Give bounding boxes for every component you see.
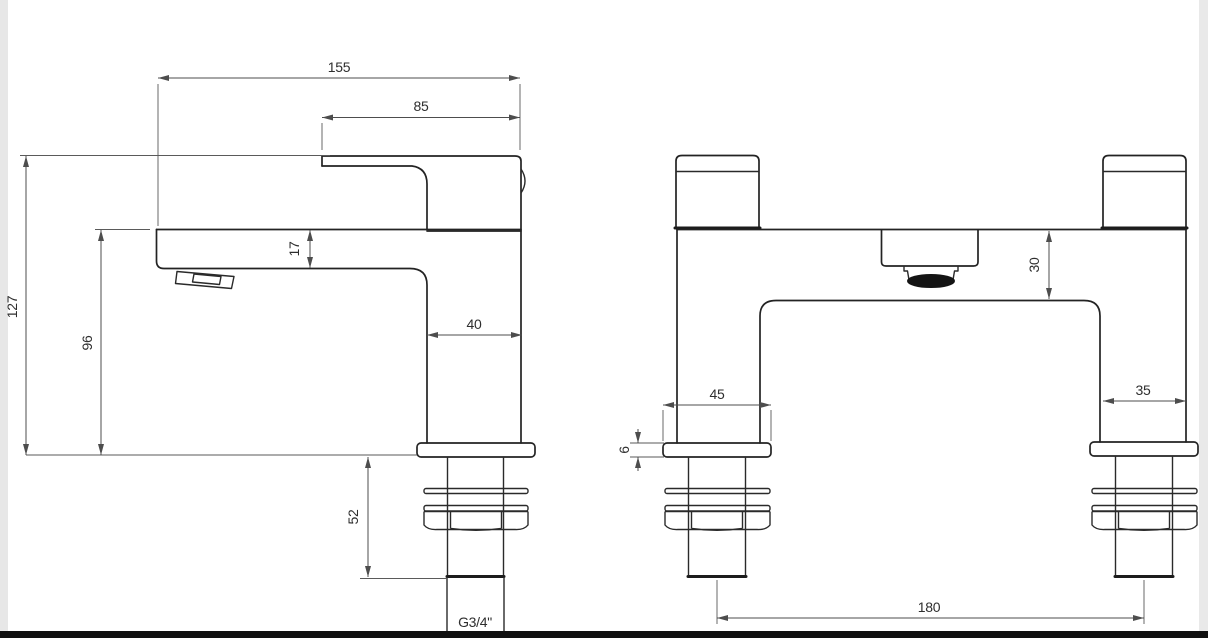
- front-left-shank: [689, 457, 746, 576]
- front-left-washer-top: [665, 489, 770, 494]
- front-right-washer-top: [1092, 489, 1197, 494]
- front-view: 45 6 30 35 180: [616, 156, 1198, 625]
- dim-155: 155: [328, 59, 351, 75]
- dim-6: 6: [616, 446, 632, 454]
- side-view: 155 85 127 96 17 40 52 G3/4": [4, 59, 535, 633]
- dim-thread: G3/4": [458, 614, 492, 630]
- front-left-knob: [676, 156, 759, 229]
- dim-40: 40: [467, 316, 482, 332]
- front-right-knob: [1103, 156, 1186, 229]
- side-aerator-inner: [193, 274, 222, 285]
- dim-45: 45: [710, 386, 725, 402]
- tap-dimension-drawing: 155 85 127 96 17 40 52 G3/4": [0, 0, 1208, 638]
- side-washer-top: [424, 489, 528, 494]
- front-bridge-arch: [760, 301, 1100, 444]
- side-shank: [448, 457, 504, 576]
- dim-30: 30: [1026, 257, 1042, 272]
- side-handle-outline: [322, 156, 521, 443]
- front-right-flange: [1090, 442, 1198, 456]
- dim-35: 35: [1136, 382, 1151, 398]
- side-base-flange: [417, 443, 535, 457]
- dim-17: 17: [286, 241, 302, 256]
- dim-180: 180: [918, 599, 941, 615]
- front-right-shank: [1116, 456, 1173, 576]
- dim-85: 85: [414, 98, 429, 114]
- front-left-washer-bottom: [665, 506, 770, 512]
- front-left-backnut: [665, 512, 770, 531]
- front-right-backnut: [1092, 512, 1197, 531]
- side-handle-underside: [322, 166, 427, 229]
- front-left-flange: [663, 443, 771, 457]
- side-spout-outline: [157, 230, 428, 444]
- technical-drawing-canvas: 155 85 127 96 17 40 52 G3/4": [0, 0, 1208, 638]
- front-aerator-face: [908, 275, 955, 288]
- bottom-black-bar: [0, 631, 1208, 638]
- front-spout-recess: [882, 230, 979, 266]
- side-dimensions: 155 85 127 96 17 40 52 G3/4": [4, 59, 522, 630]
- side-washer-bottom: [424, 506, 528, 512]
- side-backnut: [424, 512, 528, 531]
- dim-52: 52: [345, 509, 361, 524]
- side-aerator-outer: [176, 272, 235, 289]
- dim-96: 96: [79, 335, 95, 350]
- front-right-washer-bottom: [1092, 506, 1197, 512]
- dim-127: 127: [4, 295, 20, 318]
